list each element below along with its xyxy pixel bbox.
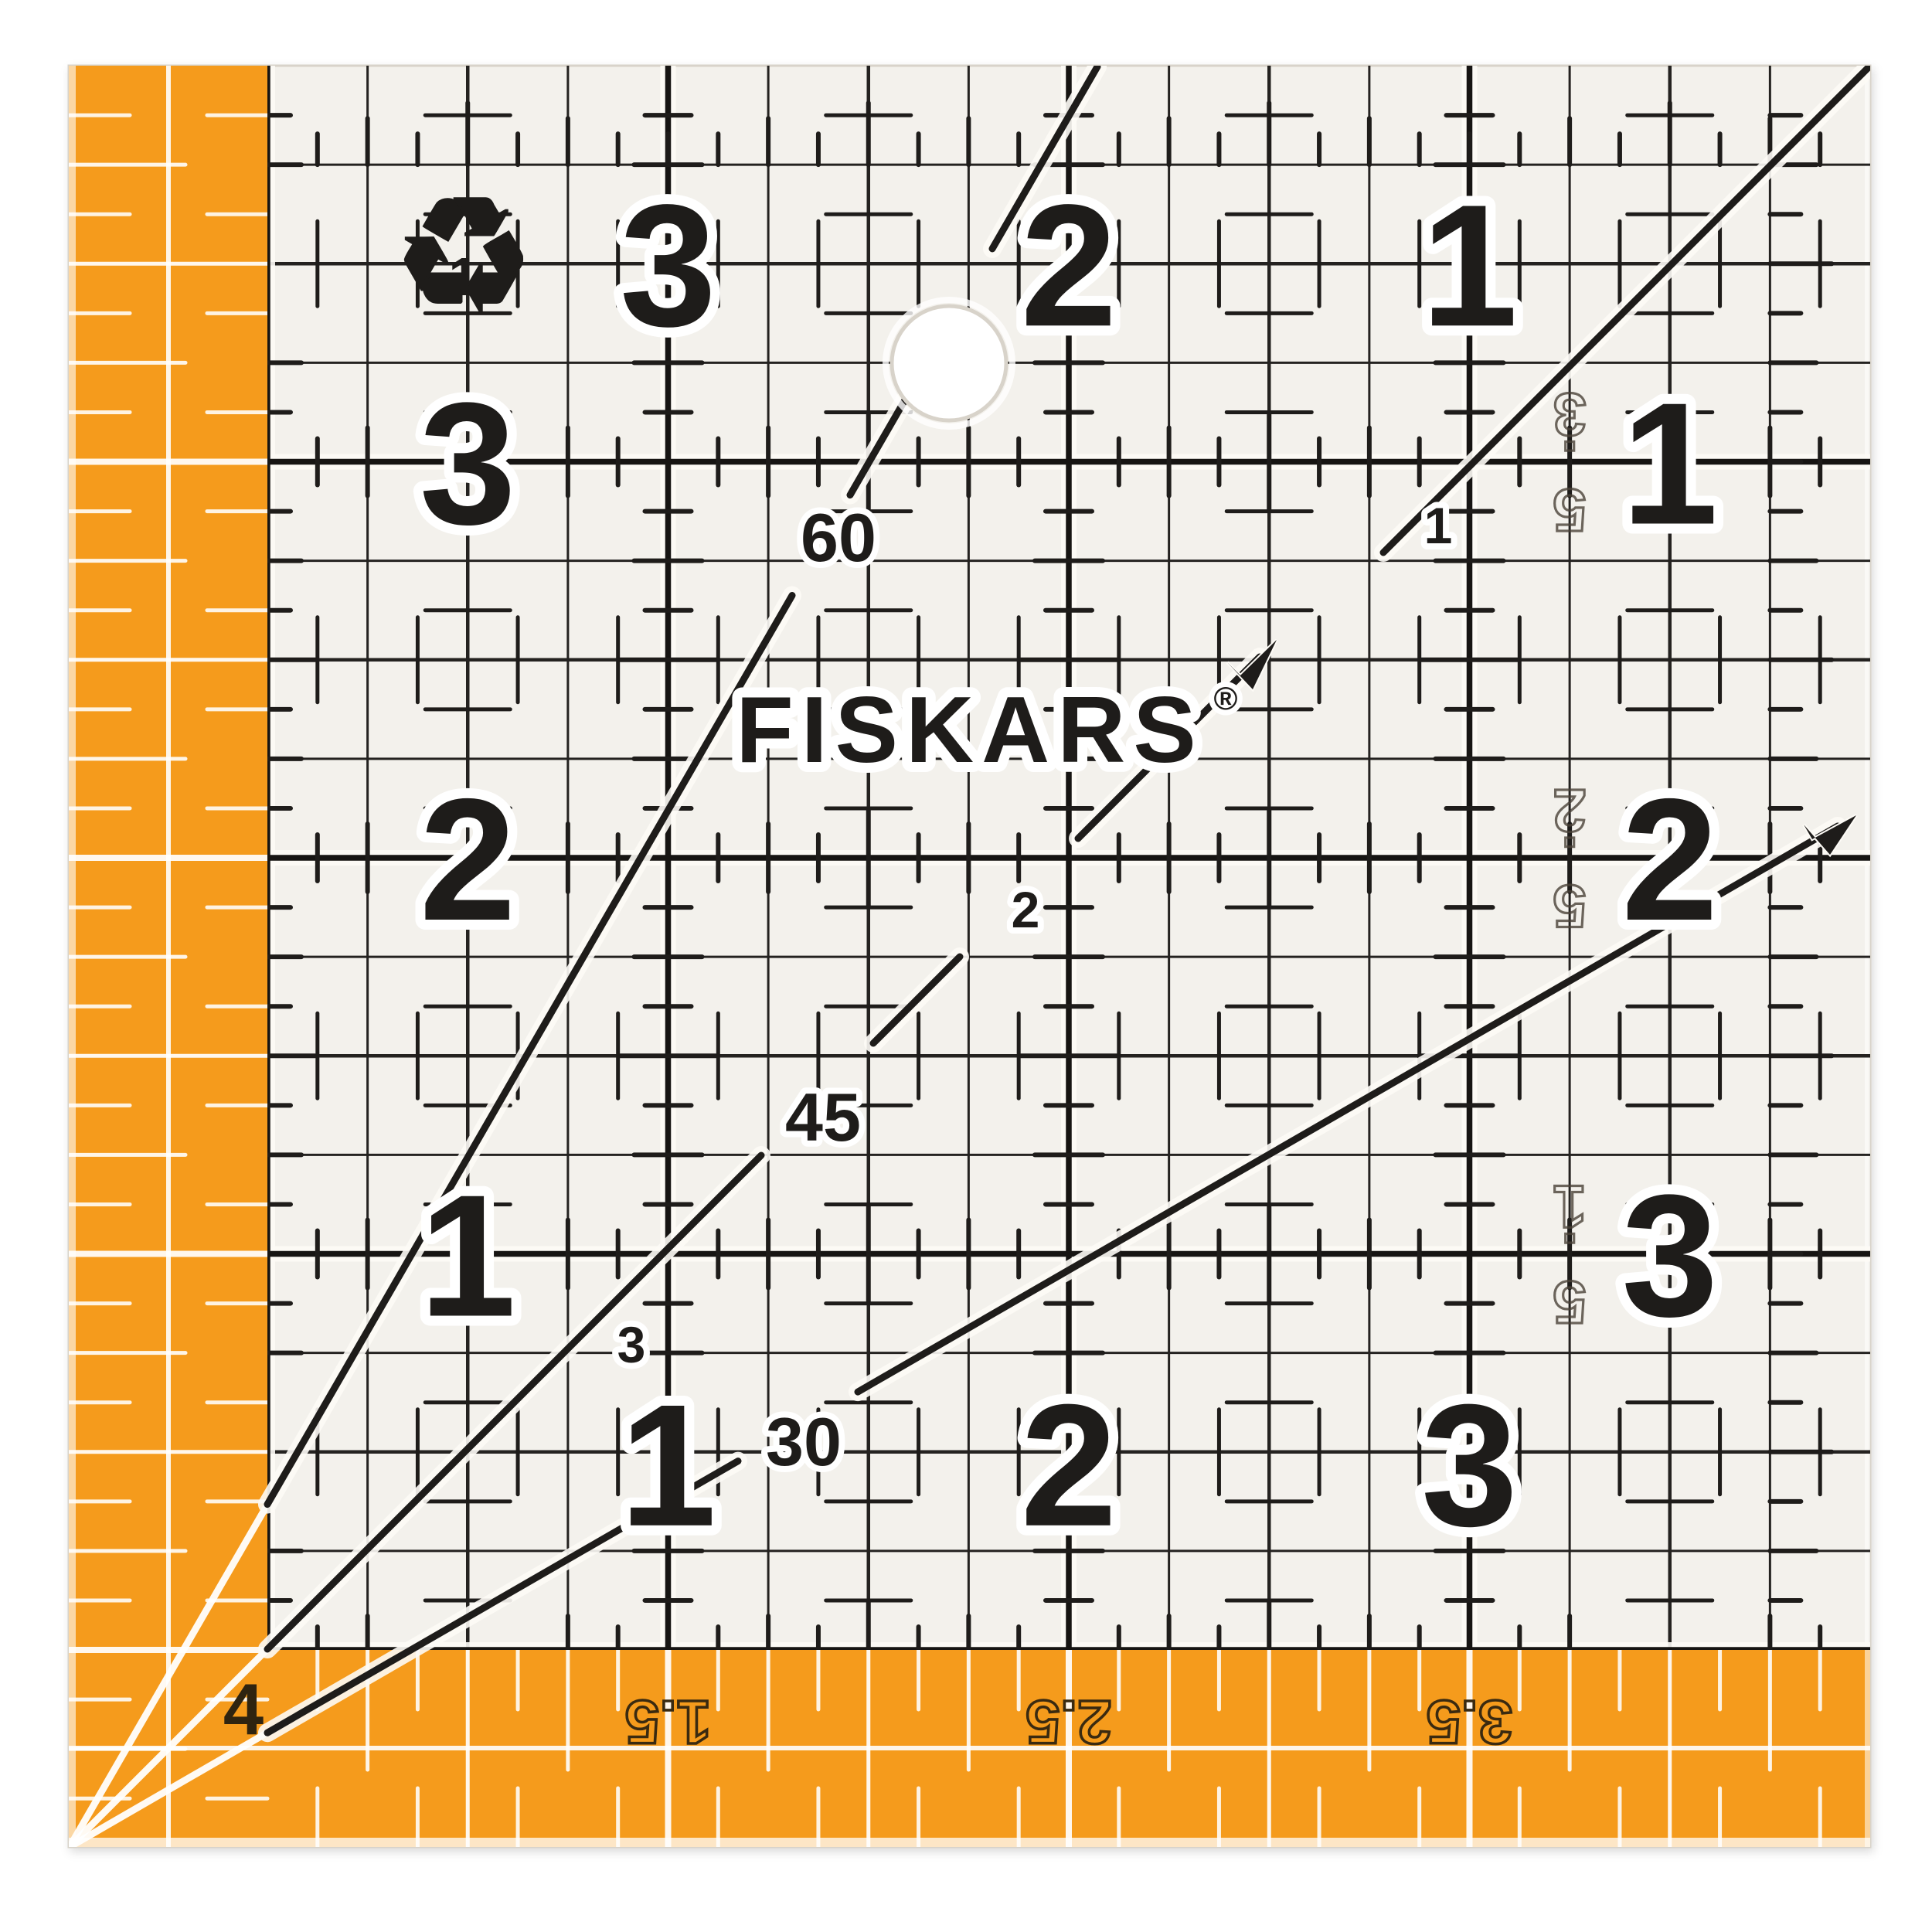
strip-corner-label: 4	[223, 1668, 264, 1750]
brand-logo-text: FISKARS	[736, 677, 1203, 782]
quilting-ruler: 3211233211233.52.51.5604530123♻141.52.53…	[0, 0, 1932, 1932]
angle-label: 60	[801, 499, 876, 576]
angle-label: 30	[766, 1403, 842, 1480]
diagonal-point-label: 1	[1424, 497, 1453, 554]
grid-number-top: 1	[1421, 168, 1518, 362]
ruler-product-photo: 3211233211233.52.51.5604530123♻141.52.53…	[0, 0, 1932, 1932]
brand-logo: FISKARS ®	[736, 677, 1237, 782]
grid-number-left: 1	[420, 1158, 516, 1353]
diagonal-point-label: 2	[1012, 881, 1040, 938]
grid-number-top: 3	[620, 168, 716, 362]
edge-bevel-left	[69, 66, 76, 1847]
grid-number-right: 1	[1621, 366, 1718, 561]
grid-number-bottom: 2	[1020, 1368, 1117, 1563]
strip-bottom-label: 2.5	[1026, 1688, 1111, 1757]
half-inch-label-glyph: 5	[1553, 872, 1586, 940]
grid-number-bottom: 1	[620, 1368, 716, 1563]
recycling-code: 1	[449, 247, 479, 307]
hanging-hole	[892, 306, 1006, 420]
angle-label: 45	[785, 1079, 861, 1155]
strip-bottom-label: 3.5	[1427, 1688, 1512, 1757]
hanging-hole	[886, 300, 1012, 427]
edge-bevel-bottom	[69, 1838, 1870, 1847]
grid-number-top: 2	[1020, 168, 1117, 362]
grid-number-left: 2	[420, 762, 516, 957]
grid-number-right: 3	[1621, 1158, 1718, 1353]
half-inch-label-glyph: 5	[1553, 1269, 1586, 1337]
grid-number-right: 2	[1621, 762, 1718, 957]
strip-bottom-label: 1.5	[625, 1688, 711, 1757]
diagonal-point-label: 3	[617, 1316, 646, 1373]
half-inch-label-glyph: 5	[1553, 477, 1586, 545]
grid-number-left: 3	[420, 366, 516, 561]
registered-trademark-icon: ®	[1214, 680, 1238, 716]
grid-number-bottom: 3	[1421, 1368, 1518, 1563]
